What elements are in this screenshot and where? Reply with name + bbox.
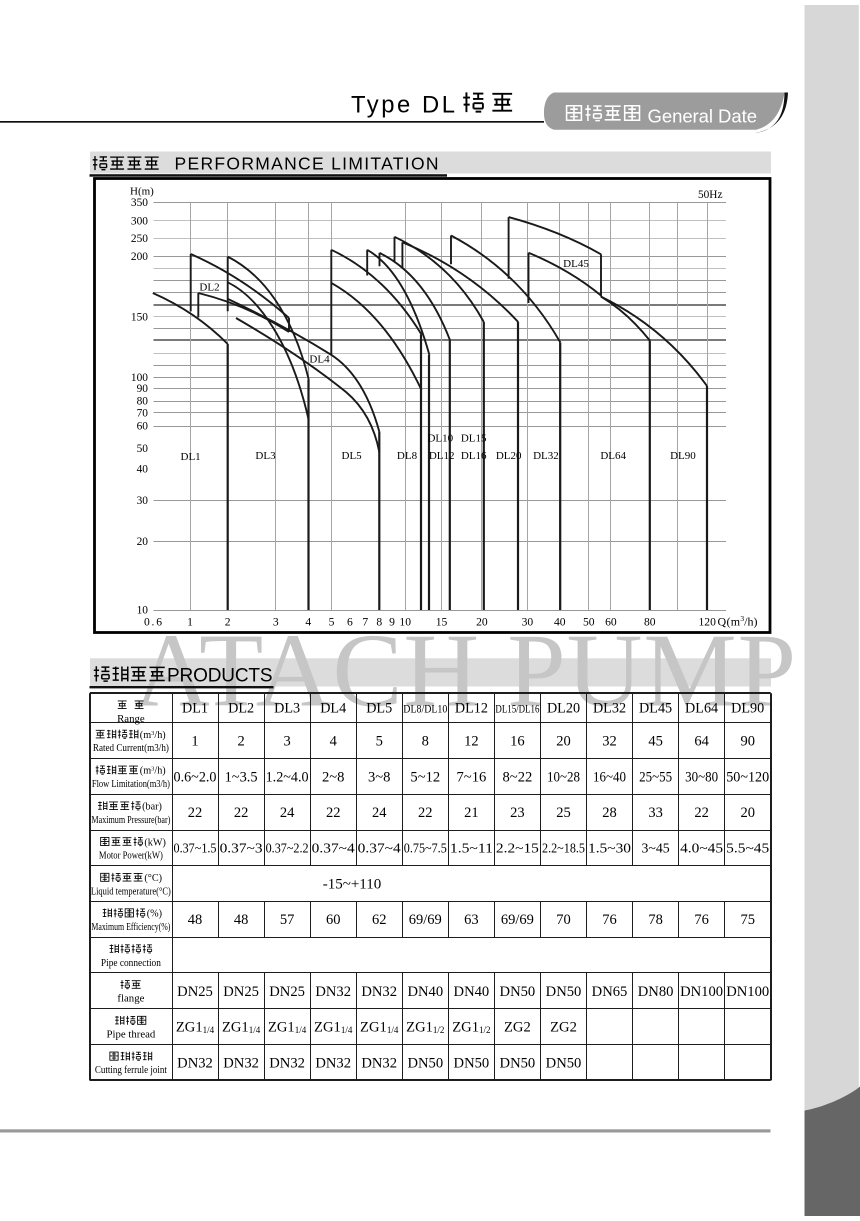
svg-text:DN50: DN50 (546, 1056, 582, 1072)
svg-text:1.5~11: 1.5~11 (450, 841, 493, 856)
svg-text:DL10: DL10 (427, 433, 453, 445)
svg-text:DL4: DL4 (309, 354, 330, 366)
svg-text:45: 45 (648, 733, 663, 749)
svg-text:DL32: DL32 (593, 700, 626, 716)
svg-text:25: 25 (556, 805, 571, 821)
svg-text:1.5~30: 1.5~30 (588, 841, 631, 856)
svg-text:DN40: DN40 (407, 984, 443, 1000)
svg-text:DN25: DN25 (269, 984, 305, 1000)
svg-text:300: 300 (131, 216, 148, 228)
svg-text:2: 2 (237, 733, 244, 749)
svg-text:DL3: DL3 (255, 450, 276, 462)
svg-text:76: 76 (602, 912, 617, 928)
svg-text:Motor Power(kW): Motor Power(kW) (99, 850, 163, 862)
svg-text:48: 48 (188, 912, 203, 928)
svg-text:60: 60 (326, 912, 341, 928)
svg-text:-15~+110: -15~+110 (323, 877, 382, 893)
svg-text:Maximum Pressure(bar): Maximum Pressure(bar) (91, 814, 170, 826)
svg-text:28: 28 (602, 805, 617, 821)
svg-text:22: 22 (694, 805, 709, 821)
svg-text:flange: flange (117, 993, 144, 1005)
svg-text:DN32: DN32 (315, 1056, 351, 1072)
svg-text:30: 30 (137, 495, 149, 507)
svg-text:12: 12 (464, 733, 479, 749)
svg-text:DN50: DN50 (500, 1056, 536, 1072)
svg-text:Flow Limitation(m3/h): Flow Limitation(m3/h) (92, 778, 170, 790)
svg-text:60: 60 (137, 421, 149, 433)
svg-text:(%): (%) (147, 909, 162, 920)
svg-text:DL12: DL12 (429, 450, 455, 462)
svg-text:78: 78 (648, 912, 663, 928)
svg-text:0.37~1.5: 0.37~1.5 (174, 841, 217, 856)
svg-text:DL4: DL4 (320, 700, 346, 716)
svg-text:DL20: DL20 (496, 450, 522, 462)
svg-text:7~16: 7~16 (457, 769, 487, 785)
svg-text:63: 63 (464, 912, 479, 928)
svg-text:48: 48 (234, 912, 249, 928)
svg-text:ZG2: ZG2 (550, 1020, 577, 1036)
svg-text:0.6~2.0: 0.6~2.0 (174, 769, 217, 785)
svg-text:DL8/DL10: DL8/DL10 (403, 701, 447, 715)
svg-text:2.2~18.5: 2.2~18.5 (542, 841, 585, 856)
svg-text:PRODUCTS: PRODUCTS (167, 666, 273, 687)
svg-text:DL2: DL2 (199, 282, 219, 294)
svg-text:(kW): (kW) (144, 837, 166, 848)
svg-text:16: 16 (510, 733, 525, 749)
svg-text:22: 22 (234, 805, 249, 821)
svg-text:DN32: DN32 (177, 1056, 213, 1072)
svg-text:DN65: DN65 (592, 984, 628, 1000)
svg-text:25~55: 25~55 (639, 769, 672, 785)
svg-text:69/69: 69/69 (409, 912, 442, 928)
svg-text:10~28: 10~28 (547, 769, 580, 785)
svg-text:3: 3 (283, 733, 290, 749)
svg-text:30~80: 30~80 (685, 769, 718, 785)
svg-text:250: 250 (131, 233, 148, 245)
svg-text:DL5: DL5 (342, 450, 363, 462)
svg-text:DL1: DL1 (181, 451, 201, 463)
svg-text:0.37~4: 0.37~4 (358, 841, 401, 856)
svg-text:8~22: 8~22 (503, 769, 533, 785)
svg-text:Rated Current(m3/h): Rated Current(m3/h) (93, 742, 169, 754)
svg-text:DL3: DL3 (274, 700, 300, 716)
svg-text:90: 90 (740, 733, 755, 749)
svg-text:DL12: DL12 (455, 700, 488, 716)
svg-text:2.2~15: 2.2~15 (496, 841, 539, 856)
svg-text:20: 20 (137, 536, 149, 548)
svg-text:Liquid temperature(°C): Liquid temperature(°C) (91, 885, 171, 897)
svg-text:16~40: 16~40 (593, 769, 626, 785)
svg-text:DL1: DL1 (182, 700, 208, 716)
svg-text:22: 22 (326, 805, 341, 821)
svg-text:ZG2: ZG2 (504, 1020, 531, 1036)
svg-text:DN50: DN50 (500, 984, 536, 1000)
svg-text:DL45: DL45 (563, 258, 589, 270)
svg-text:Pipe thread: Pipe thread (106, 1028, 155, 1040)
svg-text:3~45: 3~45 (642, 841, 670, 856)
svg-text:DL16: DL16 (461, 450, 487, 462)
svg-text:350: 350 (131, 197, 148, 209)
svg-text:2~8: 2~8 (322, 769, 345, 785)
svg-text:64: 64 (694, 733, 709, 749)
svg-text:DL45: DL45 (639, 700, 672, 716)
svg-text:DL64: DL64 (600, 450, 626, 462)
svg-text:50~120: 50~120 (726, 769, 769, 785)
svg-text:20: 20 (740, 805, 755, 821)
svg-text:0.37~3: 0.37~3 (220, 841, 263, 856)
svg-text:1.2~4.0: 1.2~4.0 (266, 769, 309, 785)
svg-text:21: 21 (464, 805, 479, 821)
svg-text:76: 76 (694, 912, 709, 928)
svg-text:H(m): H(m) (130, 186, 154, 198)
svg-text:DL15/DL16: DL15/DL16 (495, 701, 539, 715)
svg-text:1: 1 (191, 733, 198, 749)
svg-text:DN80: DN80 (638, 984, 674, 1000)
svg-text:DN25: DN25 (223, 984, 259, 1000)
svg-text:32: 32 (602, 733, 617, 749)
svg-text:0.37~2.2: 0.37~2.2 (266, 841, 309, 856)
svg-text:Maximum Efficiency(%): Maximum Efficiency(%) (91, 921, 170, 933)
svg-text:75: 75 (740, 912, 755, 928)
svg-text:90: 90 (137, 383, 149, 395)
svg-text:DL90: DL90 (670, 450, 696, 462)
svg-text:DL20: DL20 (547, 700, 580, 716)
svg-text:200: 200 (131, 251, 148, 263)
svg-text:Pipe connection: Pipe connection (101, 957, 162, 969)
svg-text:5~12: 5~12 (410, 769, 440, 785)
svg-text:33: 33 (648, 805, 663, 821)
svg-text:DL5: DL5 (366, 700, 392, 716)
svg-text:70: 70 (137, 407, 149, 419)
svg-text:(°C): (°C) (144, 873, 162, 884)
svg-text:PERFORMANCE LIMITATION: PERFORMANCE LIMITATION (175, 154, 439, 174)
svg-text:80: 80 (137, 396, 149, 408)
svg-text:Cutting ferrule joint: Cutting ferrule joint (95, 1064, 167, 1076)
svg-text:24: 24 (280, 805, 295, 821)
svg-text:3~8: 3~8 (368, 769, 391, 785)
svg-text:22: 22 (418, 805, 433, 821)
svg-text:DN40: DN40 (454, 984, 490, 1000)
svg-text:DL32: DL32 (533, 450, 559, 462)
svg-text:DL15: DL15 (461, 433, 487, 445)
svg-text:General Date: General Date (648, 106, 758, 127)
svg-text:4.0~45: 4.0~45 (680, 841, 723, 856)
svg-text:(bar): (bar) (142, 802, 162, 813)
svg-text:5: 5 (376, 733, 383, 749)
svg-text:0.75~7.5: 0.75~7.5 (404, 841, 447, 856)
svg-text:4: 4 (330, 733, 338, 749)
svg-text:DN32: DN32 (269, 1056, 305, 1072)
svg-text:62: 62 (372, 912, 387, 928)
svg-text:DL8: DL8 (397, 450, 418, 462)
svg-text:24: 24 (372, 805, 387, 821)
svg-text:DN32: DN32 (361, 1056, 397, 1072)
svg-text:DN25: DN25 (177, 984, 213, 1000)
svg-text:8: 8 (422, 733, 429, 749)
svg-text:0.37~4: 0.37~4 (312, 841, 355, 856)
svg-text:22: 22 (188, 805, 203, 821)
svg-text:40: 40 (137, 463, 149, 475)
svg-text:DN32: DN32 (361, 984, 397, 1000)
svg-text:1~3.5: 1~3.5 (225, 769, 258, 785)
svg-text:50: 50 (137, 443, 149, 455)
svg-text:DN32: DN32 (223, 1056, 259, 1072)
svg-text:5.5~45: 5.5~45 (726, 841, 769, 856)
svg-text:DL90: DL90 (731, 700, 764, 716)
svg-text:DL64: DL64 (685, 700, 718, 716)
svg-text:DN100: DN100 (726, 984, 769, 1000)
svg-text:23: 23 (510, 805, 525, 821)
svg-text:150: 150 (131, 312, 148, 324)
svg-text:20: 20 (556, 733, 571, 749)
svg-text:Range: Range (117, 713, 145, 725)
svg-text:DL2: DL2 (228, 700, 254, 716)
svg-text:DN32: DN32 (315, 984, 351, 1000)
svg-text:DN50: DN50 (407, 1056, 443, 1072)
svg-text:50Hz: 50Hz (698, 189, 722, 201)
svg-text:DN100: DN100 (680, 984, 723, 1000)
svg-text:DN50: DN50 (454, 1056, 490, 1072)
svg-text:69/69: 69/69 (501, 912, 534, 928)
svg-text:57: 57 (280, 912, 295, 928)
svg-text:DN50: DN50 (546, 984, 582, 1000)
svg-text:70: 70 (556, 912, 571, 928)
